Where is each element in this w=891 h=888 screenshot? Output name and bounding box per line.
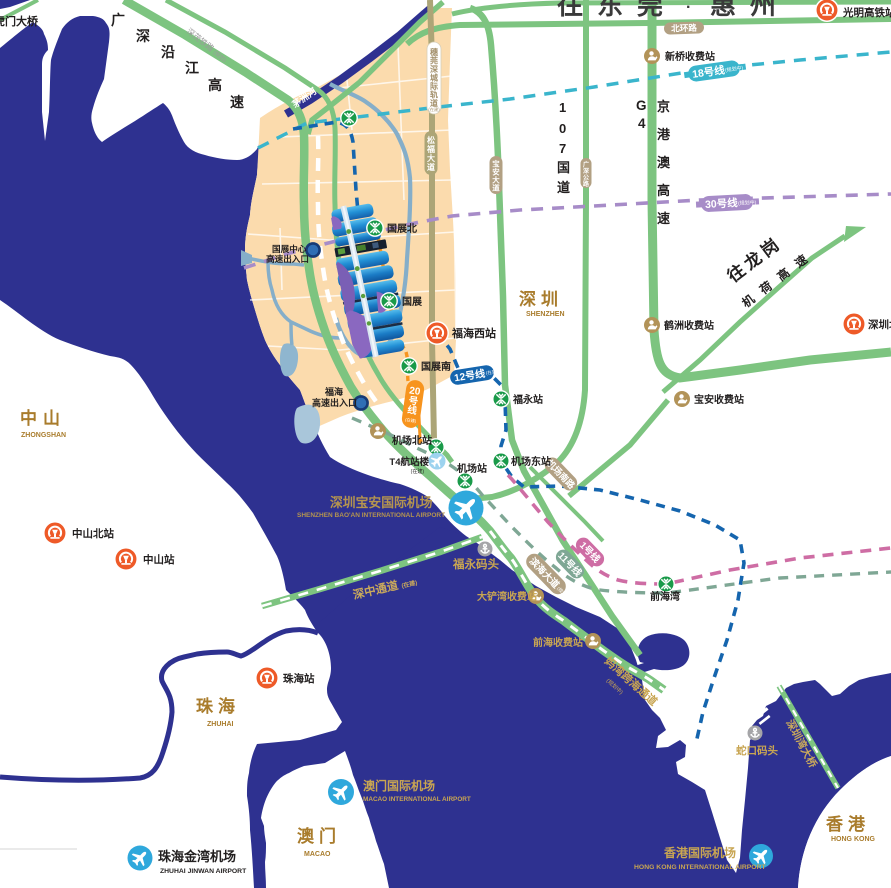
svg-text:大铲湾收费站: 大铲湾收费站 bbox=[477, 590, 537, 603]
svg-text:珠海金湾机场: 珠海金湾机场 bbox=[158, 849, 236, 864]
svg-text:深圳宝安国际机场: 深圳宝安国际机场 bbox=[330, 495, 433, 510]
svg-text:穗: 穗 bbox=[429, 47, 438, 57]
svg-text:澳: 澳 bbox=[657, 155, 671, 170]
svg-text:港: 港 bbox=[657, 127, 671, 142]
svg-text:SHENZHEN BAO'AN INTERNATIONAL: SHENZHEN BAO'AN INTERNATIONAL AIRPORT bbox=[297, 512, 445, 519]
svg-text:MACAO: MACAO bbox=[304, 851, 331, 858]
svg-text:ZHUHAI: ZHUHAI bbox=[207, 721, 233, 728]
svg-text:HONG KONG INTERNATIONAL AIRPOR: HONG KONG INTERNATIONAL AIRPORT bbox=[634, 864, 767, 871]
svg-text:ZHUHAI JINWAN AIRPORT: ZHUHAI JINWAN AIRPORT bbox=[160, 868, 247, 875]
svg-text:前海收费站: 前海收费站 bbox=[533, 636, 583, 649]
svg-text:福海: 福海 bbox=[324, 386, 343, 397]
svg-text:惠州: 惠州 bbox=[710, 0, 790, 20]
svg-text:福永站: 福永站 bbox=[512, 393, 543, 406]
svg-text:前海湾: 前海湾 bbox=[650, 590, 680, 603]
svg-text:·: · bbox=[686, 0, 691, 16]
svg-text:新桥收费站: 新桥收费站 bbox=[665, 50, 715, 63]
svg-text:往东莞: 往东莞 bbox=[557, 0, 677, 20]
svg-text:7: 7 bbox=[559, 141, 566, 156]
svg-text:国展南: 国展南 bbox=[421, 360, 451, 373]
svg-text:宝安收费站: 宝安收费站 bbox=[694, 393, 744, 406]
svg-text:深: 深 bbox=[136, 28, 150, 44]
svg-text:国展: 国展 bbox=[402, 296, 422, 308]
svg-text:国展北: 国展北 bbox=[387, 222, 417, 235]
svg-text:T4航站楼: T4航站楼 bbox=[389, 456, 429, 468]
svg-text:(在建): (在建) bbox=[428, 106, 440, 113]
svg-text:G: G bbox=[636, 98, 647, 113]
svg-text:中山北站: 中山北站 bbox=[72, 527, 114, 540]
svg-text:深: 深 bbox=[430, 64, 438, 74]
svg-text:福永码头: 福永码头 bbox=[452, 557, 499, 571]
svg-text:ZHONGSHAN: ZHONGSHAN bbox=[21, 432, 66, 439]
svg-text:珠海: 珠海 bbox=[196, 696, 240, 716]
svg-text:高: 高 bbox=[208, 77, 222, 93]
svg-text:福: 福 bbox=[426, 144, 435, 154]
svg-text:澳门: 澳门 bbox=[297, 826, 341, 846]
svg-text:松: 松 bbox=[427, 135, 435, 145]
svg-text:城: 城 bbox=[430, 73, 438, 83]
svg-text:速: 速 bbox=[230, 94, 244, 110]
svg-text:道: 道 bbox=[492, 184, 500, 193]
svg-text:澳门国际机场: 澳门国际机场 bbox=[363, 778, 435, 793]
svg-text:机场东站: 机场东站 bbox=[511, 455, 551, 468]
svg-text:(在建): (在建) bbox=[411, 468, 425, 475]
svg-text:道: 道 bbox=[557, 180, 570, 195]
svg-text:速: 速 bbox=[657, 211, 670, 226]
svg-text:道: 道 bbox=[427, 162, 435, 172]
svg-text:莞: 莞 bbox=[429, 56, 438, 66]
svg-text:HONG KONG: HONG KONG bbox=[831, 836, 876, 843]
svg-text:公: 公 bbox=[583, 175, 589, 182]
svg-text:国展中心: 国展中心 bbox=[272, 243, 307, 254]
svg-text:光明高铁站: 光明高铁站 bbox=[842, 6, 891, 19]
svg-text:路: 路 bbox=[583, 180, 590, 188]
svg-text:机场北站: 机场北站 bbox=[392, 434, 432, 447]
svg-text:高速出入口: 高速出入口 bbox=[266, 253, 309, 264]
svg-text:江: 江 bbox=[185, 60, 199, 76]
svg-text:深圳北站: 深圳北站 bbox=[868, 318, 891, 331]
svg-text:中山站: 中山站 bbox=[143, 553, 175, 566]
svg-text:4: 4 bbox=[638, 116, 646, 131]
svg-text:蛇口码头: 蛇口码头 bbox=[736, 744, 778, 757]
svg-text:香港国际机场: 香港国际机场 bbox=[663, 845, 736, 860]
svg-text:深圳: 深圳 bbox=[519, 289, 563, 309]
svg-text:SHENZHEN: SHENZHEN bbox=[526, 311, 565, 318]
svg-text:高速出入口: 高速出入口 bbox=[312, 397, 357, 408]
svg-text:鹤洲收费站: 鹤洲收费站 bbox=[663, 319, 714, 332]
svg-text:1: 1 bbox=[559, 100, 566, 115]
svg-text:高: 高 bbox=[657, 183, 670, 198]
svg-text:机场站: 机场站 bbox=[457, 462, 487, 475]
svg-text:MACAO INTERNATIONAL AIRPORT: MACAO INTERNATIONAL AIRPORT bbox=[363, 796, 471, 803]
svg-text:(规划中): (规划中) bbox=[738, 199, 757, 207]
svg-text:沿: 沿 bbox=[161, 44, 175, 60]
svg-text:虎门大桥: 虎门大桥 bbox=[0, 14, 39, 28]
svg-text:深: 深 bbox=[583, 167, 589, 175]
svg-text:广: 广 bbox=[583, 161, 589, 169]
svg-text:珠海站: 珠海站 bbox=[283, 672, 315, 685]
svg-text:0: 0 bbox=[559, 121, 566, 136]
svg-text:国: 国 bbox=[557, 160, 570, 175]
svg-text:广: 广 bbox=[111, 12, 125, 28]
svg-text:北环路: 北环路 bbox=[671, 22, 698, 34]
svg-text:京: 京 bbox=[657, 99, 670, 114]
svg-text:大: 大 bbox=[427, 153, 435, 163]
svg-text:福海西站: 福海西站 bbox=[451, 326, 496, 340]
svg-text:中山: 中山 bbox=[20, 408, 66, 428]
svg-text:轨: 轨 bbox=[430, 90, 438, 100]
svg-text:30号线: 30号线 bbox=[705, 196, 739, 211]
svg-text:香港: 香港 bbox=[826, 814, 870, 834]
